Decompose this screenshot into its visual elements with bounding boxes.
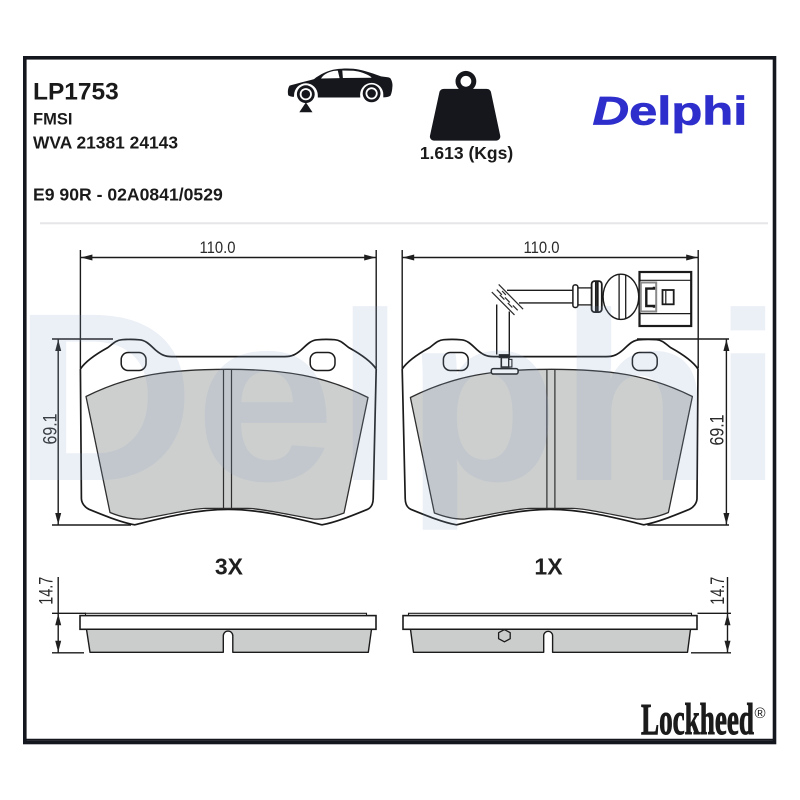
svg-text:14.7: 14.7 (36, 577, 58, 605)
svg-text:WVA 21381 24143: WVA 21381 24143 (33, 133, 178, 153)
svg-text:Delphi: Delphi (593, 89, 748, 134)
svg-text:110.0: 110.0 (524, 238, 560, 257)
svg-text:LP1753: LP1753 (33, 79, 119, 106)
svg-text:Delphi: Delphi (13, 263, 783, 531)
svg-text:E9 90R - 02A0841/0529: E9 90R - 02A0841/0529 (33, 185, 223, 205)
svg-text:3X: 3X (215, 554, 244, 580)
svg-text:14.7: 14.7 (707, 577, 729, 605)
svg-text:110.0: 110.0 (200, 238, 236, 257)
svg-text:1X: 1X (534, 554, 563, 580)
svg-text:Lockheed: Lockheed (641, 695, 754, 744)
svg-text:FMSI: FMSI (33, 111, 72, 129)
svg-text:1.613 (Kgs): 1.613 (Kgs) (420, 143, 513, 163)
svg-text:®: ® (755, 705, 766, 722)
